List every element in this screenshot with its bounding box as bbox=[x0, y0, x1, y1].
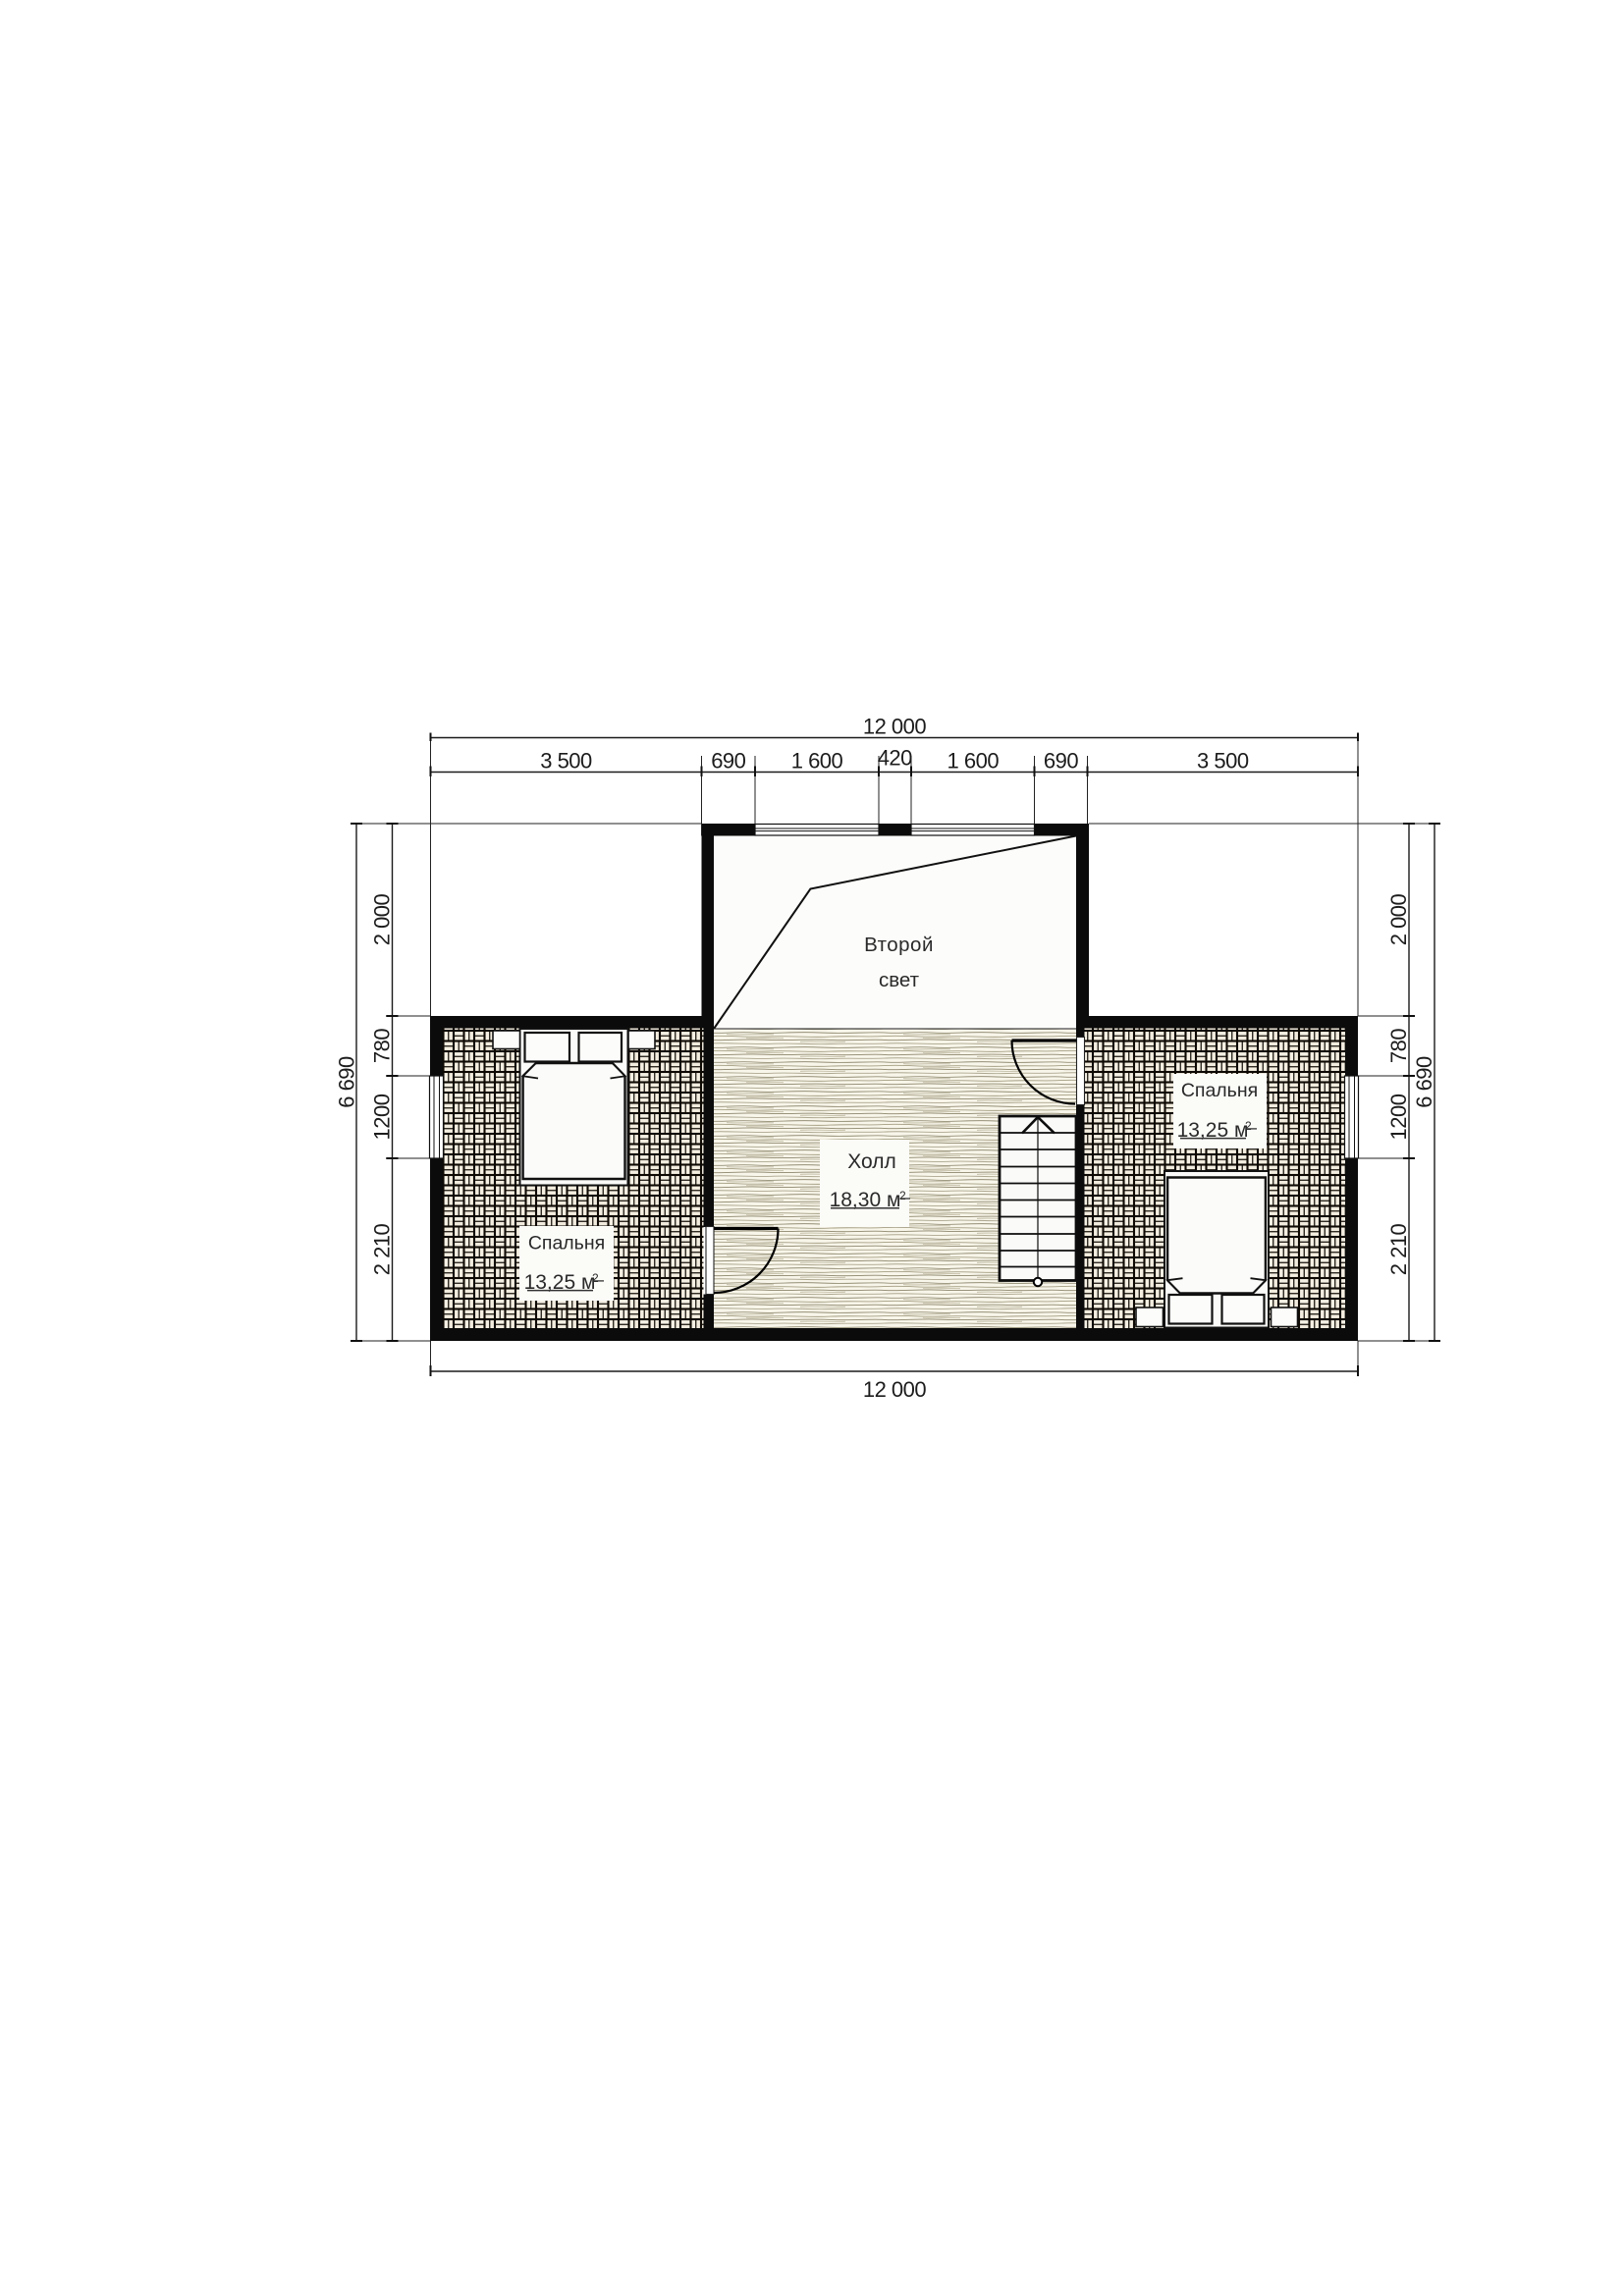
svg-text:1 600: 1 600 bbox=[947, 749, 1000, 774]
svg-text:2: 2 bbox=[592, 1271, 599, 1285]
svg-text:690: 690 bbox=[711, 749, 745, 774]
svg-text:12 000: 12 000 bbox=[863, 1377, 927, 1402]
svg-text:1200: 1200 bbox=[370, 1094, 395, 1140]
svg-text:690: 690 bbox=[1044, 749, 1078, 774]
svg-text:3 500: 3 500 bbox=[540, 749, 592, 774]
svg-text:2 210: 2 210 bbox=[370, 1223, 395, 1275]
svg-text:2 000: 2 000 bbox=[1386, 893, 1411, 945]
svg-text:Спальня: Спальня bbox=[1181, 1080, 1258, 1101]
svg-text:2: 2 bbox=[1245, 1119, 1252, 1133]
svg-text:свет: свет bbox=[879, 969, 920, 991]
svg-text:780: 780 bbox=[370, 1029, 395, 1063]
svg-text:780: 780 bbox=[1386, 1029, 1411, 1063]
svg-text:1 600: 1 600 bbox=[791, 749, 843, 774]
svg-text:6 690: 6 690 bbox=[335, 1056, 359, 1108]
svg-text:2 210: 2 210 bbox=[1386, 1223, 1411, 1275]
svg-text:Спальня: Спальня bbox=[528, 1233, 605, 1255]
svg-text:Холл: Холл bbox=[847, 1150, 896, 1173]
svg-text:1200: 1200 bbox=[1386, 1094, 1411, 1140]
svg-text:420: 420 bbox=[878, 746, 912, 771]
svg-text:12 000: 12 000 bbox=[863, 715, 927, 739]
svg-text:2 000: 2 000 bbox=[370, 893, 395, 945]
svg-text:6 690: 6 690 bbox=[1412, 1056, 1436, 1108]
svg-text:Второй: Второй bbox=[864, 934, 934, 956]
svg-text:3 500: 3 500 bbox=[1197, 749, 1249, 774]
svg-text:2: 2 bbox=[899, 1189, 906, 1202]
